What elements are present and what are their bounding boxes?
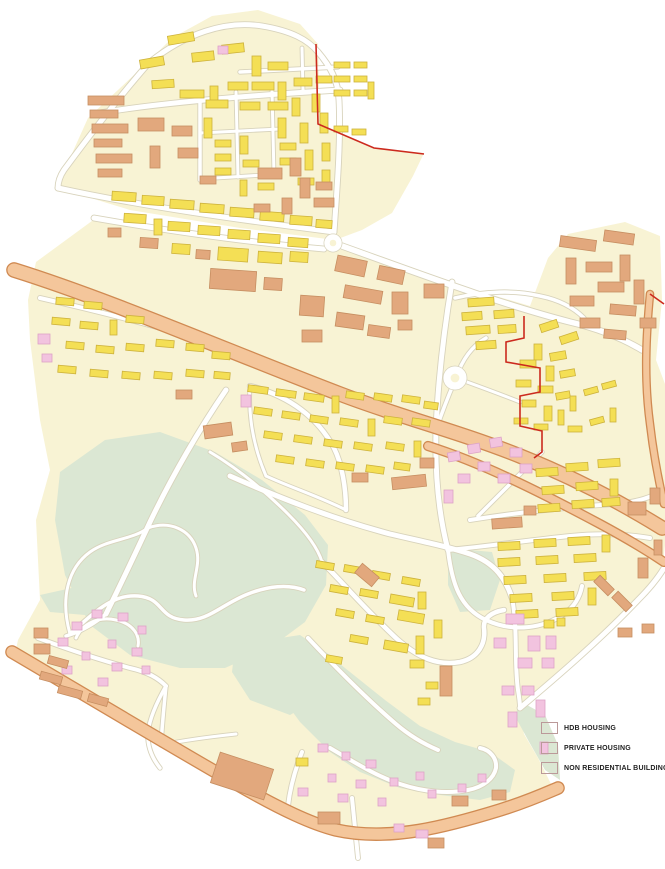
building-hdb <box>322 143 330 161</box>
building-hdb <box>170 199 195 210</box>
building-hdb <box>534 538 556 547</box>
building-hdb <box>536 467 559 477</box>
building-private <box>536 700 545 717</box>
building-private <box>366 760 376 768</box>
building-hdb <box>504 575 526 584</box>
building-private <box>498 474 510 483</box>
building-private <box>390 778 398 786</box>
roundabout <box>447 370 463 386</box>
building-private <box>416 772 424 780</box>
building-private <box>416 830 428 838</box>
building-private <box>546 636 556 649</box>
building-nonres <box>566 258 576 284</box>
building-hdb <box>574 553 596 562</box>
building-private <box>528 636 540 651</box>
building-hdb <box>52 317 71 326</box>
building-hdb <box>602 497 621 506</box>
building-hdb <box>186 369 205 378</box>
building-nonres <box>440 666 452 696</box>
building-nonres <box>138 118 164 131</box>
building-hdb <box>576 481 599 491</box>
building-hdb <box>260 211 285 222</box>
building-hdb <box>534 344 542 360</box>
building-hdb <box>126 315 145 324</box>
building-hdb <box>542 485 565 495</box>
building-hdb <box>112 191 137 202</box>
building-private <box>92 610 102 618</box>
building-hdb <box>434 620 442 638</box>
building-hdb <box>354 76 367 82</box>
building-nonres <box>392 292 408 314</box>
building-private <box>318 744 328 752</box>
building-hdb <box>240 180 247 196</box>
building-hdb <box>546 366 554 381</box>
building-nonres <box>610 304 637 316</box>
building-hdb <box>110 320 117 335</box>
building-nonres <box>452 796 468 806</box>
building-hdb <box>288 237 309 247</box>
building-hdb <box>552 591 574 600</box>
building-nonres <box>604 329 627 340</box>
building-private <box>394 824 404 832</box>
building-hdb <box>602 535 610 552</box>
building-hdb <box>252 82 274 90</box>
building-private <box>467 443 480 454</box>
building-hdb <box>494 309 515 318</box>
building-hdb <box>212 351 231 360</box>
building-nonres <box>178 148 198 158</box>
building-hdb <box>278 118 286 138</box>
building-hdb <box>522 400 536 407</box>
building-nonres <box>200 176 216 184</box>
building-hdb <box>566 462 589 472</box>
building-hdb <box>200 203 225 214</box>
building-hdb <box>192 51 215 62</box>
legend: HDB HOUSING PRIVATE HOUSING NON RESIDENT… <box>541 718 665 778</box>
building-private <box>218 46 228 54</box>
building-nonres <box>209 268 256 291</box>
building-hdb <box>214 371 231 379</box>
building-nonres <box>420 458 434 468</box>
building-nonres <box>94 139 122 147</box>
building-hdb <box>316 76 332 83</box>
building-hdb <box>152 79 175 89</box>
building-hdb <box>180 90 204 98</box>
building-hdb <box>558 410 564 425</box>
building-private <box>506 614 524 624</box>
building-nonres <box>96 154 132 163</box>
building-nonres <box>92 124 128 133</box>
building-hdb <box>84 301 103 310</box>
building-hdb <box>215 168 231 175</box>
building-private <box>338 794 348 802</box>
building-hdb <box>468 297 494 307</box>
building-nonres <box>140 237 159 248</box>
building-nonres <box>264 277 283 290</box>
building-nonres <box>352 473 368 482</box>
building-hdb <box>334 62 350 68</box>
building-nonres <box>492 517 523 529</box>
building-hdb <box>252 56 261 76</box>
building-nonres <box>316 182 332 190</box>
building-hdb <box>294 78 312 86</box>
building-nonres <box>618 628 632 637</box>
building-nonres <box>428 838 444 848</box>
building-private <box>72 622 82 630</box>
building-nonres <box>196 250 211 260</box>
map-page: HDB HOUSING PRIVATE HOUSING NON RESIDENT… <box>0 0 665 869</box>
legend-swatch-nonres <box>541 762 558 774</box>
building-hdb <box>498 541 520 550</box>
building-hdb <box>258 251 283 264</box>
building-hdb <box>206 100 228 108</box>
building-nonres <box>231 441 247 452</box>
building-nonres <box>108 228 121 237</box>
building-private <box>542 658 554 668</box>
building-hdb <box>240 136 248 154</box>
building-hdb <box>544 406 552 421</box>
building-hdb <box>334 76 350 82</box>
building-hdb <box>215 154 231 161</box>
building-hdb <box>410 660 424 668</box>
building-hdb <box>354 90 367 96</box>
building-nonres <box>650 488 660 504</box>
building-private <box>458 474 470 483</box>
legend-swatch-private <box>541 742 558 754</box>
building-hdb <box>218 247 249 262</box>
building-hdb <box>510 593 532 602</box>
building-hdb <box>215 140 231 147</box>
building-hdb <box>204 118 212 138</box>
building-private <box>142 666 150 674</box>
building-hdb <box>588 588 596 605</box>
building-hdb <box>268 102 288 110</box>
building-hdb <box>80 321 99 330</box>
building-nonres <box>34 644 50 654</box>
building-private <box>489 437 502 448</box>
building-private <box>42 354 52 362</box>
building-hdb <box>240 102 260 110</box>
building-hdb <box>278 82 286 100</box>
building-hdb <box>424 401 439 410</box>
building-private <box>342 752 350 760</box>
building-nonres <box>302 330 322 342</box>
building-hdb <box>90 369 109 378</box>
building-hdb <box>172 243 191 254</box>
legend-item: PRIVATE HOUSING <box>541 738 665 758</box>
building-nonres <box>34 628 48 638</box>
building-hdb <box>154 219 162 235</box>
building-nonres <box>299 295 324 317</box>
building-private <box>510 448 522 457</box>
building-hdb <box>598 458 621 468</box>
building-hdb <box>354 62 367 68</box>
building-hdb <box>126 343 145 352</box>
building-hdb <box>312 94 320 112</box>
building-hdb <box>300 123 308 143</box>
building-hdb <box>296 758 308 766</box>
building-nonres <box>634 280 644 304</box>
building-hdb <box>168 221 191 232</box>
building-hdb <box>96 345 115 354</box>
building-nonres <box>176 390 192 399</box>
building-private <box>356 780 366 788</box>
building-hdb <box>570 396 576 411</box>
building-hdb <box>230 207 255 218</box>
building-private <box>108 640 116 648</box>
building-private <box>478 774 486 782</box>
roundabout <box>327 237 339 249</box>
building-nonres <box>586 262 612 272</box>
building-hdb <box>466 325 490 335</box>
building-hdb <box>66 341 85 350</box>
building-private <box>138 626 146 634</box>
building-nonres <box>638 558 648 578</box>
building-private <box>508 712 517 727</box>
building-hdb <box>418 698 430 705</box>
building-hdb <box>186 343 205 352</box>
building-hdb <box>58 365 77 374</box>
building-private <box>444 490 453 503</box>
building-hdb <box>536 555 558 564</box>
building-hdb <box>426 682 438 689</box>
building-hdb <box>280 143 296 150</box>
building-private <box>478 462 490 471</box>
building-private <box>522 686 534 695</box>
building-hdb <box>514 418 528 424</box>
building-hdb <box>290 251 309 262</box>
building-nonres <box>424 284 444 298</box>
building-hdb <box>258 233 281 244</box>
building-hdb <box>268 62 288 70</box>
building-hdb <box>418 592 426 609</box>
building-hdb <box>368 419 375 436</box>
building-private <box>82 652 90 660</box>
building-hdb <box>572 499 595 509</box>
building-hdb <box>498 557 520 566</box>
building-private <box>38 334 50 344</box>
building-nonres <box>318 812 340 824</box>
building-private <box>58 638 68 646</box>
building-nonres <box>628 502 646 515</box>
building-nonres <box>580 318 600 328</box>
building-hdb <box>498 324 517 333</box>
building-hdb <box>292 98 300 116</box>
building-nonres <box>640 318 656 328</box>
building-private <box>520 464 532 473</box>
building-nonres <box>654 540 662 555</box>
building-nonres <box>598 282 624 292</box>
building-nonres <box>282 198 292 214</box>
building-private <box>112 663 122 671</box>
building-hdb <box>557 618 565 626</box>
building-nonres <box>254 204 270 212</box>
building-private <box>518 658 532 668</box>
road <box>236 92 238 177</box>
building-private <box>98 678 108 686</box>
building-hdb <box>156 339 175 348</box>
building-private <box>502 686 514 695</box>
building-hdb <box>243 160 259 167</box>
building-hdb <box>610 479 618 496</box>
building-hdb <box>228 229 251 240</box>
building-private <box>494 638 506 648</box>
building-hdb <box>610 408 616 422</box>
building-hdb <box>258 183 274 190</box>
building-nonres <box>524 506 536 515</box>
building-hdb <box>556 607 578 616</box>
building-hdb <box>56 297 75 306</box>
building-hdb <box>414 441 421 457</box>
building-private <box>328 774 336 782</box>
building-hdb <box>538 503 561 513</box>
building-hdb <box>332 396 339 413</box>
building-nonres <box>98 169 122 177</box>
building-private <box>298 788 308 796</box>
building-nonres <box>290 158 301 176</box>
building-hdb <box>516 380 531 387</box>
building-hdb <box>320 113 328 133</box>
building-hdb <box>568 536 590 545</box>
legend-item: NON RESIDENTIAL BUILDINGS <box>541 758 665 778</box>
building-nonres <box>258 168 282 179</box>
building-hdb <box>568 426 582 432</box>
legend-label: NON RESIDENTIAL BUILDINGS <box>564 765 665 772</box>
building-nonres <box>88 96 124 105</box>
building-hdb <box>142 195 165 206</box>
legend-item: HDB HOUSING <box>541 718 665 738</box>
building-hdb <box>462 311 483 320</box>
building-hdb <box>334 90 350 96</box>
building-private <box>118 613 128 621</box>
building-hdb <box>476 340 497 349</box>
building-hdb <box>368 82 374 99</box>
building-hdb <box>416 636 424 654</box>
building-hdb <box>352 129 366 135</box>
building-hdb <box>544 573 566 582</box>
building-nonres <box>492 790 506 800</box>
building-hdb <box>290 215 313 226</box>
building-private <box>458 784 466 792</box>
building-private <box>447 451 460 462</box>
building-nonres <box>314 198 334 207</box>
legend-label: HDB HOUSING <box>564 725 616 732</box>
legend-swatch-hdb <box>541 722 558 734</box>
building-nonres <box>300 178 310 198</box>
building-nonres <box>150 146 160 168</box>
building-hdb <box>305 150 313 170</box>
building-nonres <box>172 126 192 136</box>
building-hdb <box>228 82 248 90</box>
building-nonres <box>620 255 630 281</box>
building-private <box>428 790 436 798</box>
building-hdb <box>316 219 333 228</box>
building-private <box>132 648 142 656</box>
building-nonres <box>642 624 654 633</box>
building-hdb <box>124 213 147 224</box>
building-private <box>378 798 386 806</box>
building-hdb <box>122 371 141 380</box>
building-hdb <box>544 620 554 628</box>
building-nonres <box>570 296 594 306</box>
building-nonres <box>398 320 412 330</box>
building-hdb <box>198 225 221 236</box>
legend-label: PRIVATE HOUSING <box>564 745 631 752</box>
building-private <box>241 395 251 407</box>
building-nonres <box>90 110 118 118</box>
building-hdb <box>154 371 173 380</box>
